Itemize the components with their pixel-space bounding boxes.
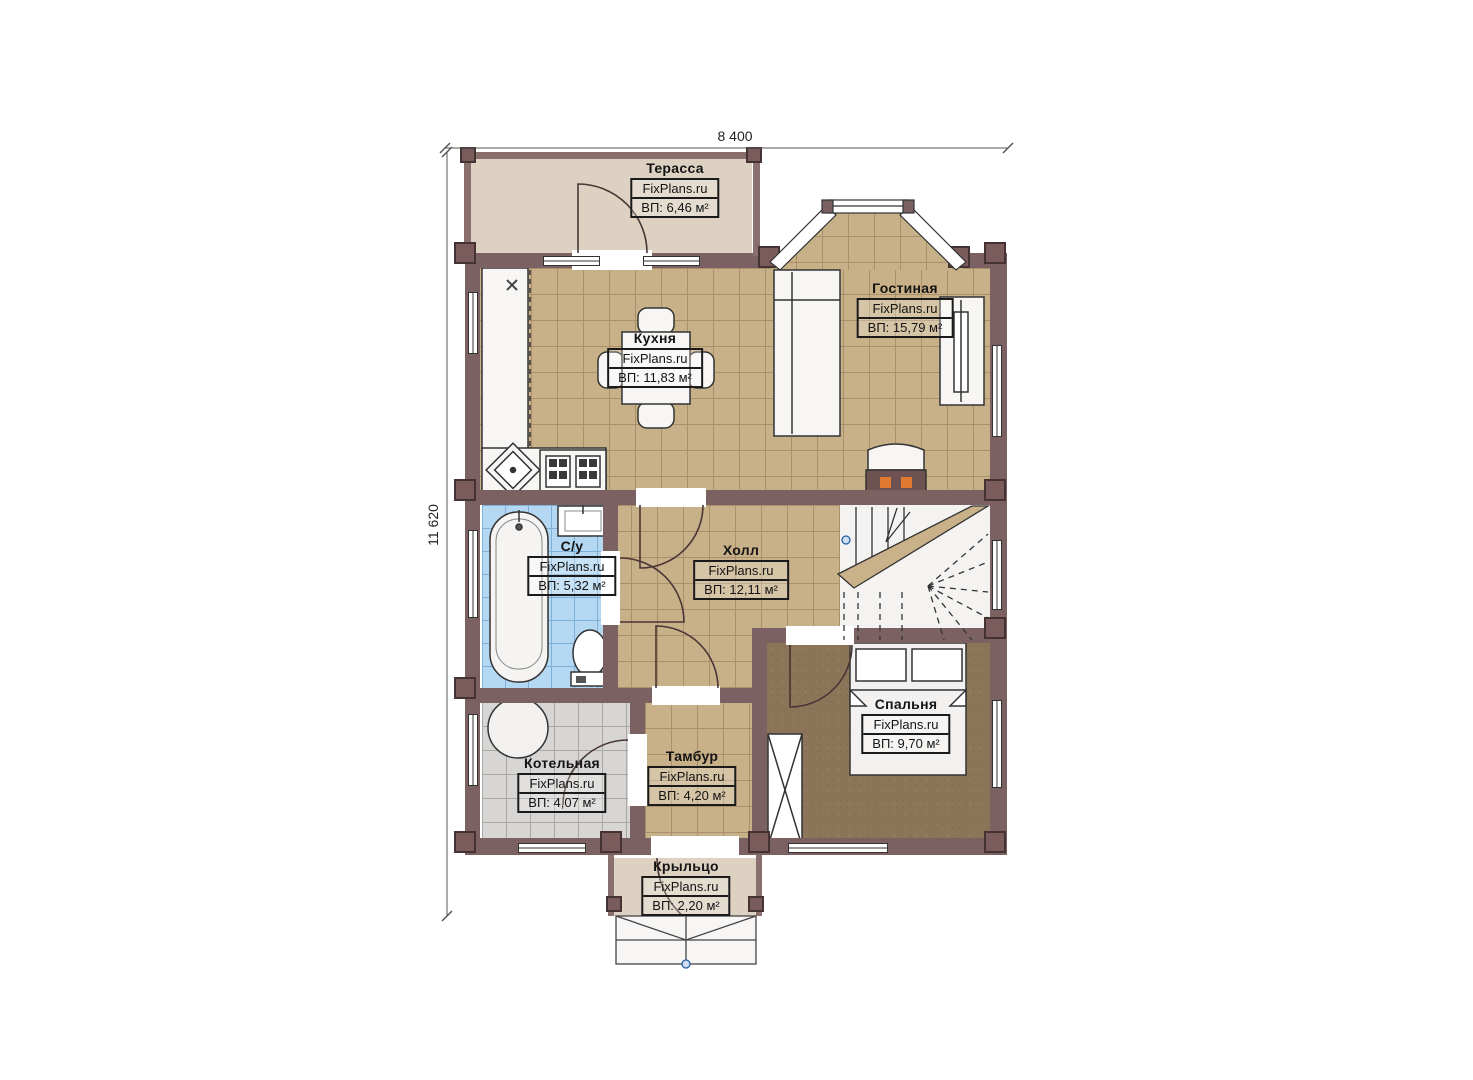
room-area: ВП: 15,79 м² (859, 317, 952, 336)
room-info-box: FixPlans.ru ВП: 9,70 м² (861, 714, 950, 754)
floor-plan-canvas: 8 400 11 620 Терасса FixPlans.ru ВП: 6,4… (0, 0, 1473, 1080)
room-info-box: FixPlans.ru ВП: 2,20 м² (641, 876, 730, 916)
brand-text: FixPlans.ru (643, 878, 728, 895)
room-label-bathroom: С/у FixPlans.ru ВП: 5,32 м² (527, 538, 616, 596)
room-label-bedroom: Спальня FixPlans.ru ВП: 9,70 м² (861, 696, 950, 754)
bay-window (770, 206, 836, 270)
room-label-terrace: Терасса FixPlans.ru ВП: 6,46 м² (630, 160, 719, 218)
room-area: ВП: 2,20 м² (643, 895, 728, 914)
room-label-hall: Холл FixPlans.ru ВП: 12,11 м² (693, 542, 789, 600)
room-area: ВП: 4,07 м² (519, 792, 604, 811)
brand-text: FixPlans.ru (695, 562, 787, 579)
room-area: ВП: 4,20 м² (649, 785, 734, 804)
brand-text: FixPlans.ru (519, 775, 604, 792)
tambour-door (656, 626, 718, 688)
room-label-living: Гостиная FixPlans.ru ВП: 15,79 м² (857, 280, 954, 338)
room-info-box: FixPlans.ru ВП: 5,32 м² (527, 556, 616, 596)
brand-text: FixPlans.ru (609, 350, 701, 367)
brand-text: FixPlans.ru (632, 180, 717, 197)
room-label-tambour: Тамбур FixPlans.ru ВП: 4,20 м² (647, 748, 736, 806)
room-name: Кухня (607, 330, 703, 346)
staircase (838, 506, 988, 640)
bay-post (822, 200, 833, 213)
brand-text: FixPlans.ru (859, 300, 952, 317)
room-area: ВП: 9,70 м² (863, 733, 948, 752)
bedroom-door (790, 645, 852, 707)
room-label-porch: Крыльцо FixPlans.ru ВП: 2,20 м² (641, 858, 730, 916)
bay-post (903, 200, 914, 213)
bay-window (900, 206, 966, 270)
porch-steps (616, 916, 756, 968)
brand-text: FixPlans.ru (529, 558, 614, 575)
room-name: Тамбур (647, 748, 736, 764)
room-label-kitchen: Кухня FixPlans.ru ВП: 11,83 м² (607, 330, 703, 388)
room-info-box: FixPlans.ru ВП: 11,83 м² (607, 348, 703, 388)
room-name: С/у (527, 538, 616, 554)
linework-layer (0, 0, 1473, 1080)
dimension-height: 11 620 (425, 504, 441, 546)
room-name: Котельная (517, 755, 606, 771)
brand-text: FixPlans.ru (863, 716, 948, 733)
room-area: ВП: 11,83 м² (609, 367, 701, 386)
dimension-width: 8 400 (717, 128, 752, 144)
room-name: Спальня (861, 696, 950, 712)
room-area: ВП: 5,32 м² (529, 575, 614, 594)
brand-text: FixPlans.ru (649, 768, 734, 785)
stair-stringer (838, 506, 988, 588)
room-name: Холл (693, 542, 789, 558)
newel-post (842, 536, 850, 544)
room-name: Гостиная (857, 280, 954, 296)
room-info-box: FixPlans.ru ВП: 4,07 м² (517, 773, 606, 813)
room-label-boiler: Котельная FixPlans.ru ВП: 4,07 м² (517, 755, 606, 813)
room-name: Терасса (630, 160, 719, 176)
room-area: ВП: 6,46 м² (632, 197, 717, 216)
room-area: ВП: 12,11 м² (695, 579, 787, 598)
room-name: Крыльцо (641, 858, 730, 874)
room-info-box: FixPlans.ru ВП: 12,11 м² (693, 560, 789, 600)
room-info-box: FixPlans.ru ВП: 15,79 м² (857, 298, 954, 338)
room-info-box: FixPlans.ru ВП: 6,46 м² (630, 178, 719, 218)
room-info-box: FixPlans.ru ВП: 4,20 м² (647, 766, 736, 806)
